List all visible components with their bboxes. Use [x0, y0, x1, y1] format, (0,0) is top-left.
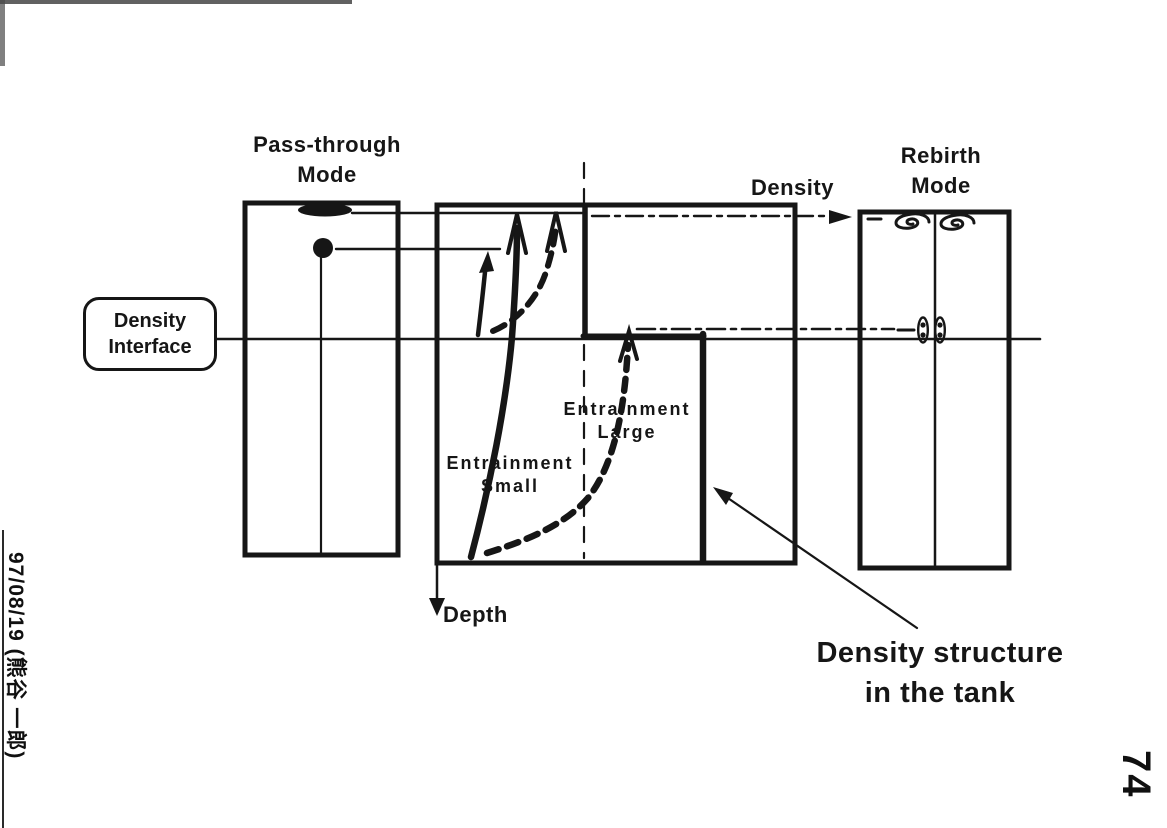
entrainment-small-arrow — [471, 214, 526, 557]
caption-line2: in the tank — [780, 673, 1100, 713]
rebirth-title-line1: Rebirth — [851, 141, 1031, 171]
density-interface-line1: Density — [86, 308, 214, 334]
density-axis-label: Density — [751, 175, 834, 201]
surface-intrusion-ellipse-icon — [298, 204, 352, 217]
interface-dashdot-line — [637, 329, 914, 330]
vortex-swirl-icon — [896, 214, 929, 228]
middle-tank — [437, 205, 795, 563]
density-structure-profile — [583, 206, 704, 561]
entrainment-small-label: Entrainment Small — [430, 452, 590, 498]
density-axis-arrowhead-icon — [829, 210, 852, 224]
pass-through-tank — [245, 203, 398, 555]
entrainment-small-line1: Entrainment — [430, 452, 590, 475]
pass-through-title-line2: Mode — [237, 160, 417, 190]
middle-tank-wall — [437, 205, 795, 563]
caption-line1: Density structure — [780, 633, 1100, 673]
entrainment-large-line2: Large — [547, 421, 707, 444]
caption-pointer-arrowhead-icon — [713, 487, 733, 505]
small-rise-arrow — [478, 251, 494, 335]
vortex-swirl-icon — [941, 215, 974, 229]
density-structure-caption: Density structure in the tank — [780, 633, 1100, 713]
tracer-dot-icon — [313, 238, 333, 258]
handwritten-date-note: 97/08/19 (熊谷 一郎) — [2, 552, 32, 759]
pass-through-mode-title: Pass-through Mode — [237, 130, 417, 190]
rebirth-title-line2: Mode — [851, 171, 1031, 201]
density-axis-line — [352, 210, 881, 224]
density-interface-label: Density Interface — [83, 297, 217, 371]
entrainment-large-line1: Entrainment — [547, 398, 707, 421]
small-rise-arrowhead-icon — [479, 251, 494, 273]
pass-through-title-line1: Pass-through — [237, 130, 417, 160]
depth-axis-label: Depth — [443, 602, 508, 628]
entrainment-small-curve — [471, 228, 517, 557]
entrainment-large-label: Entrainment Large — [547, 398, 707, 444]
small-rise-arrow-shaft — [478, 272, 485, 335]
entrainment-small-line2: Small — [430, 475, 590, 498]
handwritten-page-number: 74 — [1113, 750, 1158, 799]
rebirth-tank — [860, 212, 1009, 568]
caption-pointer-arrow — [713, 487, 917, 628]
dashed-rise-arrow — [493, 212, 565, 331]
density-interface-line2: Interface — [86, 334, 214, 360]
rebirth-mode-title: Rebirth Mode — [851, 141, 1031, 201]
